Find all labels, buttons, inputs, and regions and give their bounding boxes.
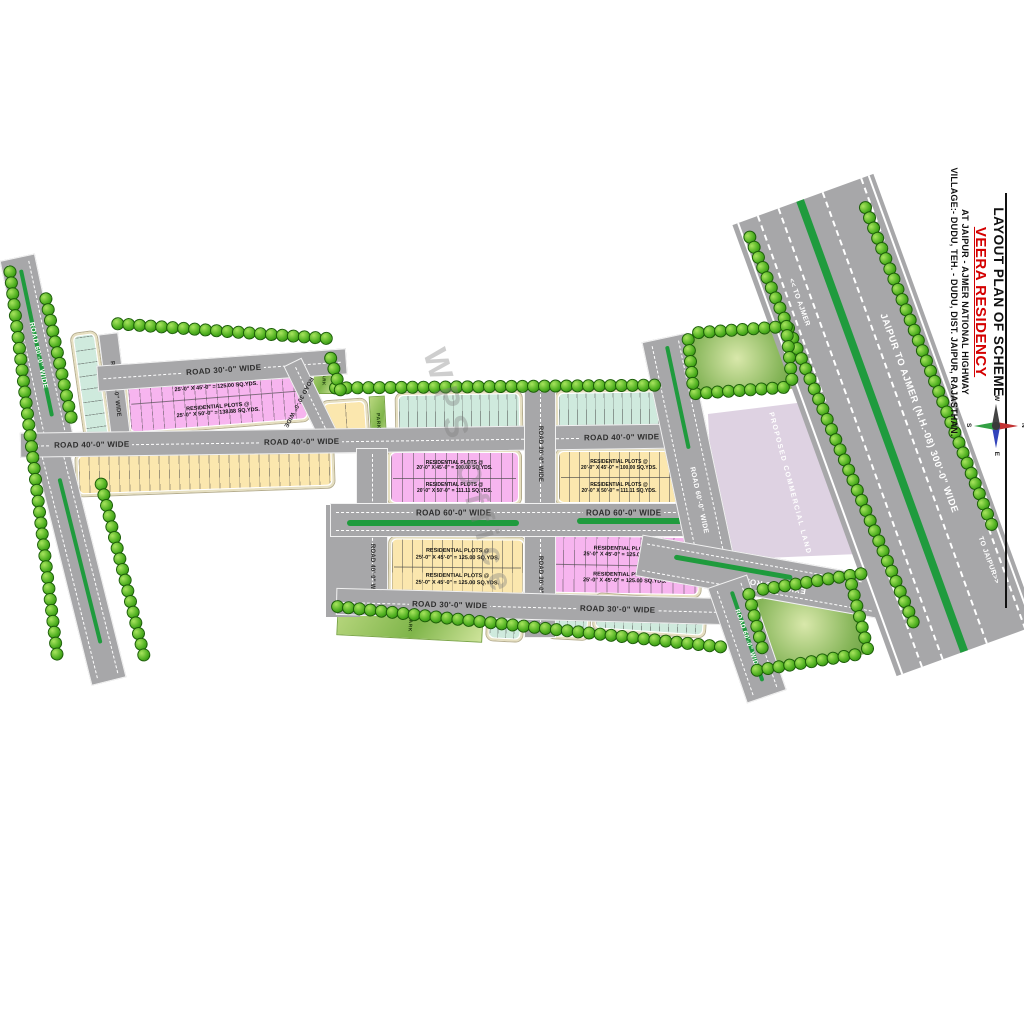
- tree-icon: [308, 331, 322, 345]
- tree-icon: [373, 381, 386, 394]
- tree-icon: [232, 325, 246, 339]
- tree-icon: [43, 592, 57, 606]
- tree-icon: [40, 570, 54, 584]
- plot-block-label: RESIDENTIAL PLOTS @ 20'-0" X 50'-0" = 11…: [581, 483, 656, 495]
- park-label: PARK: [375, 413, 382, 429]
- tree-icon: [221, 325, 235, 339]
- tree-icon: [111, 317, 125, 331]
- tree-icon: [166, 321, 180, 335]
- tree-row: [112, 318, 344, 345]
- tree-icon: [101, 508, 117, 524]
- tree-icon: [109, 540, 125, 556]
- road-label: ROAD 60'-0" WIDE: [27, 321, 48, 389]
- tree-icon: [210, 324, 224, 338]
- tree-icon: [264, 328, 278, 342]
- compass-w-label: W: [993, 395, 1000, 401]
- tree-icon: [670, 635, 684, 649]
- tree-icon: [188, 322, 202, 336]
- tree-icon: [104, 519, 120, 535]
- scheme-name: VEERA RESIDENCY: [970, 227, 989, 377]
- tree-icon: [122, 318, 136, 332]
- commercial-land-label: PROPOSED COMMERCIAL LAND: [768, 411, 813, 555]
- tree-icon: [39, 559, 53, 573]
- road-label: ROAD 30'-0" WIDE: [409, 599, 491, 610]
- tree-icon: [362, 381, 375, 394]
- tree-icon: [144, 319, 158, 333]
- road-label: ROAD 30'-0" WIDE: [537, 426, 543, 482]
- road-label: ROAD 60'-0" WIDE: [688, 466, 709, 534]
- tree-icon: [32, 505, 46, 519]
- tree-icon: [44, 603, 58, 617]
- road-label: ROAD 30'-0" WIDE: [577, 603, 659, 614]
- tree-icon: [275, 328, 289, 342]
- tree-icon: [253, 327, 267, 341]
- tree-icon: [35, 527, 49, 541]
- scheme-address: AT JAIPUR - AJMER NATIONAL HIGHWAY: [959, 209, 970, 395]
- road-60-left-upper: ROAD 60'-0" WIDE: [0, 253, 76, 456]
- title-block: LAYOUT PLAN OF SCHEME VEERA RESIDENCY AT…: [928, 92, 1006, 512]
- tree-icon: [34, 516, 48, 530]
- tree-icon: [31, 494, 45, 508]
- road-label: ROAD 40'-0" WIDE: [261, 436, 343, 446]
- median: [665, 346, 690, 449]
- tree-icon: [691, 637, 705, 651]
- median: [57, 478, 102, 644]
- plan-title: LAYOUT PLAN OF SCHEME: [989, 207, 1006, 396]
- tree-icon: [36, 538, 50, 552]
- tree-icon: [115, 562, 131, 578]
- road-label: ROAD 60'-0" WIDE: [733, 608, 760, 671]
- road-60-middle: ROAD 60'-0" WIDE ROAD 60'-0" WIDE: [330, 503, 702, 537]
- tree-icon: [340, 381, 353, 394]
- compass-e-label: E: [993, 452, 1000, 456]
- plot-block-label: RESIDENTIAL PLOTS @ 20'-0" X 45'-0" = 10…: [581, 460, 657, 472]
- tree-icon: [702, 639, 716, 653]
- tree-icon: [46, 614, 60, 628]
- tree-icon: [47, 625, 61, 639]
- tree-icon: [648, 633, 662, 647]
- median: [577, 518, 695, 524]
- road-label: ROAD 40'-0" WIDE: [51, 439, 133, 449]
- tree-icon: [319, 331, 333, 345]
- compass-center: [992, 422, 1000, 430]
- tree-icon: [128, 615, 144, 631]
- tree-icon: [99, 498, 115, 514]
- tree-icon: [243, 326, 257, 340]
- tree-icon: [112, 551, 128, 567]
- layout-plan: ROAD 60'-0" WIDE ROAD 30'-0" WIDE ROAD 3…: [0, 0, 1024, 1024]
- tree-icon: [48, 636, 62, 650]
- tree-icon: [133, 318, 147, 332]
- tree-icon: [199, 323, 213, 337]
- tree-icon: [659, 634, 673, 648]
- tree-icon: [107, 530, 123, 546]
- tree-icon: [297, 330, 311, 344]
- road-label: ROAD 60'-0" WIDE: [583, 509, 664, 518]
- compass-s-label: S: [965, 423, 972, 427]
- tree-icon: [123, 594, 139, 610]
- tree-icon: [384, 381, 397, 394]
- tree-icon: [117, 572, 133, 588]
- road-label: ROAD 30'-0" WIDE: [183, 363, 265, 378]
- tree-icon: [120, 583, 136, 599]
- tree-icon: [351, 381, 364, 394]
- park-label: PARK: [407, 615, 414, 631]
- plot-block-label: RESIDENTIAL PLOTS @ 25'-0" X 50'-0" = 13…: [176, 400, 260, 419]
- road-label: ROAD 40'-0" WIDE: [581, 432, 663, 442]
- tree-icon: [38, 549, 52, 563]
- tree-icon: [177, 321, 191, 335]
- tree-icon: [286, 329, 300, 343]
- tree-icon: [133, 636, 149, 652]
- scheme-village: VILLAGE:- DUDU, TEH. - DUDU, DIST. JAIPU…: [948, 167, 959, 436]
- tree-icon: [155, 320, 169, 334]
- tree-icon: [42, 581, 56, 595]
- plot-block-yellow-central: RESIDENTIAL PLOTS @ 20'-0" X 45'-0" = 10…: [556, 449, 682, 505]
- tree-icon: [681, 636, 695, 650]
- tree-icon: [50, 647, 64, 661]
- compass-n-label: N: [1020, 423, 1024, 428]
- compass-rose: N E S W: [973, 403, 1019, 449]
- tree-icon: [136, 647, 152, 663]
- tree-icon: [125, 604, 141, 620]
- tree-icon: [131, 626, 147, 642]
